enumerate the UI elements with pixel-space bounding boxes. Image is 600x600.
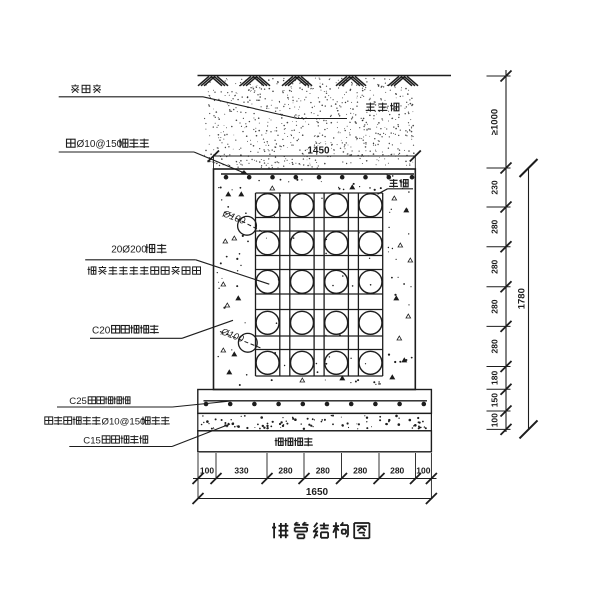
svg-text:20Ø200: 20Ø200: [111, 244, 147, 255]
svg-text:280: 280: [490, 259, 500, 273]
svg-text:100: 100: [200, 466, 214, 476]
svg-text:280: 280: [278, 466, 292, 476]
svg-text:230: 230: [490, 180, 500, 194]
svg-text:C20: C20: [92, 325, 111, 336]
svg-text:330: 330: [234, 466, 248, 476]
svg-text:1650: 1650: [306, 487, 329, 498]
svg-text:150: 150: [490, 393, 500, 407]
svg-text:280: 280: [490, 339, 500, 353]
svg-text:Ø10@150: Ø10@150: [77, 139, 123, 150]
svg-text:Ø10@150: Ø10@150: [102, 416, 146, 427]
svg-text:C25: C25: [69, 396, 87, 407]
svg-text:100: 100: [490, 413, 500, 427]
svg-text:280: 280: [390, 466, 404, 476]
svg-text:280: 280: [316, 466, 330, 476]
svg-text:280: 280: [490, 299, 500, 313]
svg-text:1780: 1780: [517, 288, 528, 309]
svg-text:C15: C15: [83, 435, 101, 446]
svg-text:≥1000: ≥1000: [490, 109, 501, 135]
svg-text:180: 180: [490, 371, 500, 385]
svg-text:280: 280: [490, 219, 500, 233]
svg-text:280: 280: [353, 466, 367, 476]
svg-text:100: 100: [416, 466, 430, 476]
svg-text:1450: 1450: [307, 146, 330, 157]
